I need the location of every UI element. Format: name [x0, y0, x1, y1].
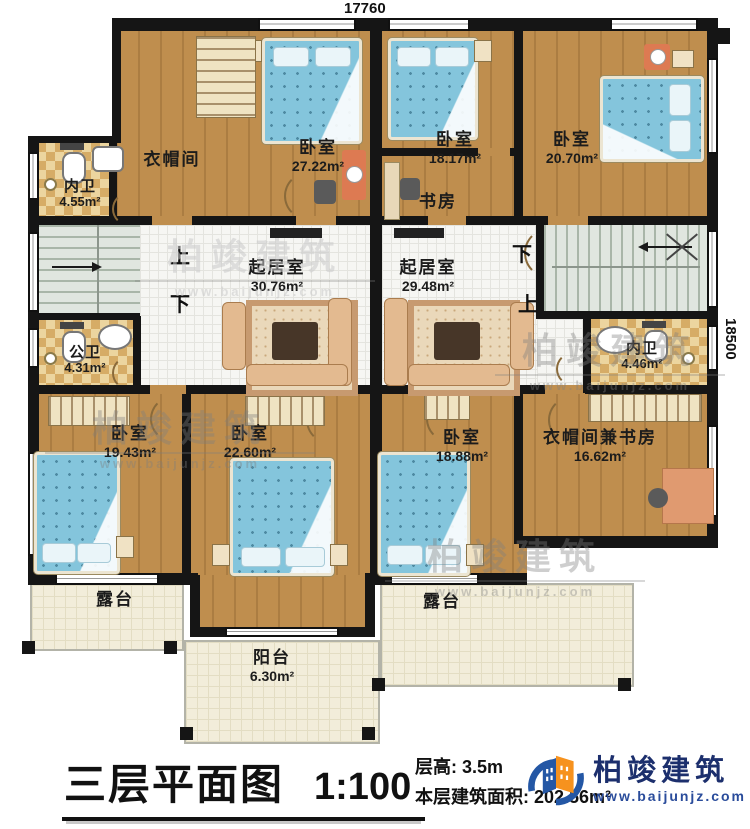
- dimension-right: 18500: [722, 318, 739, 360]
- toilet-tank: [60, 322, 84, 329]
- wardrobe: [48, 396, 130, 426]
- toilet-tank: [60, 143, 84, 150]
- desk: [662, 468, 714, 524]
- plan-name: 三层平面图: [64, 751, 284, 812]
- bed: [388, 38, 478, 140]
- floor-drain: [44, 178, 57, 191]
- terrace-right-floor: [380, 583, 634, 687]
- column-marker: [180, 727, 193, 740]
- logo-website: www.baijunjz.com: [593, 788, 746, 804]
- logo-company-name: 柏竣建筑: [593, 756, 746, 788]
- wall-segment: [28, 136, 120, 143]
- toilet-tank: [642, 321, 666, 328]
- lamp-icon: [650, 49, 666, 65]
- wardrobe: [588, 394, 702, 422]
- door-arc: [112, 192, 146, 226]
- room-label-cloakroom-tl: 衣帽间: [144, 150, 201, 170]
- door-arc: [150, 396, 196, 442]
- sofa: [384, 298, 408, 386]
- door-gap: [478, 148, 510, 156]
- nightstand: [330, 544, 348, 566]
- title-block: 三层平面图 1:100 层高: 3.5m 本层建筑面积: 202.56m² 柏竣…: [0, 745, 750, 829]
- room-label-bedroom-2260: 卧室22.60m²: [224, 424, 276, 460]
- wardrobe: [196, 36, 256, 118]
- nightstand: [466, 544, 484, 566]
- room-label-study: 书房: [419, 192, 457, 212]
- column-marker: [362, 727, 375, 740]
- window: [388, 18, 470, 31]
- room-label-balcony: 阳台6.30m²: [250, 648, 294, 684]
- sink-icon: [92, 146, 124, 172]
- door-gap: [548, 216, 588, 225]
- window: [28, 232, 39, 312]
- room-label-cloakroom-study: 衣帽间兼书房16.62m²: [543, 428, 657, 464]
- desk-chair: [400, 178, 420, 200]
- room-label-bath-455: 内卫4.55m²: [59, 178, 100, 210]
- wall-segment: [519, 536, 718, 548]
- window: [258, 18, 356, 31]
- bed: [230, 458, 334, 576]
- nightstand: [672, 50, 694, 68]
- bed: [262, 38, 362, 144]
- room-label-living-2948: 起居室29.48m²: [400, 258, 457, 294]
- door-arc: [112, 356, 146, 390]
- door-gap: [152, 216, 192, 225]
- stair-arrow-right-head: [638, 242, 648, 252]
- column-marker: [22, 641, 35, 654]
- chair: [314, 180, 336, 204]
- wardrobe: [245, 396, 325, 426]
- coffee-table: [434, 322, 480, 360]
- window: [28, 328, 39, 368]
- dimension-top: 17760: [344, 0, 386, 17]
- window: [610, 18, 698, 31]
- floor-drain: [44, 352, 57, 365]
- sofa: [222, 302, 246, 370]
- window: [28, 152, 39, 200]
- column-marker: [164, 641, 177, 654]
- window: [707, 58, 718, 154]
- plan-scale: 1:100: [314, 766, 411, 809]
- room-label-bedroom-1888: 卧室18.88m²: [436, 428, 488, 464]
- stair-label-up-left: 上: [170, 240, 190, 269]
- sofa: [246, 364, 348, 386]
- door-arc: [556, 352, 590, 386]
- sofa: [408, 364, 510, 386]
- door-gap: [545, 385, 585, 394]
- column-marker: [714, 28, 730, 44]
- desk: [384, 162, 400, 220]
- wall-segment: [514, 18, 523, 225]
- room-label-living-3076: 起居室30.76m²: [249, 258, 306, 294]
- window: [55, 573, 159, 585]
- desk-chair: [648, 488, 668, 508]
- room-label-bath-446: 内卫4.46m²: [621, 340, 662, 372]
- tv-console: [394, 228, 444, 238]
- room-label-bedroom-1817: 卧室18.17m²: [429, 130, 481, 166]
- plan-title: 三层平面图 1:100: [62, 751, 425, 821]
- floor-plan: 衣帽间 卧室27.22m² 内卫4.55m² 卧室18.17m² 书房 卧室20…: [0, 0, 750, 745]
- door-gap: [428, 216, 466, 225]
- window: [707, 325, 718, 371]
- nightstand: [116, 536, 134, 558]
- bed: [600, 76, 704, 162]
- room-label-terrace-left: 露台: [96, 590, 134, 610]
- exterior-notch-top-left: [28, 18, 112, 136]
- wall-segment: [514, 394, 523, 544]
- floor-drain: [682, 352, 695, 365]
- stairs-left: [39, 225, 140, 313]
- wall-segment: [112, 18, 121, 143]
- window: [225, 627, 339, 637]
- stair-arrow-left: [52, 266, 92, 268]
- wall-segment: [544, 311, 718, 319]
- room-label-bath-public: 公卫4.31m²: [64, 344, 105, 376]
- stair-rail-right: [552, 266, 700, 268]
- coffee-table: [272, 322, 318, 360]
- window: [707, 230, 718, 308]
- room-label-terrace-right: 露台: [423, 592, 461, 612]
- company-logo: 柏竣建筑 www.baijunjz.com: [523, 747, 746, 813]
- door-gap: [150, 385, 186, 394]
- stair-label-down-right: 下: [512, 238, 532, 267]
- lamp-icon: [346, 166, 363, 183]
- logo-building-icon: [523, 747, 589, 813]
- tv-console: [270, 228, 322, 238]
- bed: [378, 452, 470, 576]
- stair-label-up-right: 上: [518, 288, 538, 317]
- room-label-bedroom-1943: 卧室19.43m²: [104, 424, 156, 460]
- room-label-bedroom-2722: 卧室27.22m²: [292, 138, 344, 174]
- nightstand: [212, 544, 230, 566]
- nightstand: [474, 40, 492, 62]
- bed: [34, 452, 120, 574]
- room-label-bedroom-2070: 卧室20.70m²: [546, 130, 598, 166]
- column-marker: [372, 678, 385, 691]
- exterior-notch-bottom-right: [527, 548, 718, 583]
- stair-label-down-left: 下: [170, 288, 190, 317]
- wall-segment: [28, 313, 140, 320]
- stair-arrow-left-head: [92, 262, 102, 272]
- column-marker: [618, 678, 631, 691]
- wardrobe: [424, 394, 470, 420]
